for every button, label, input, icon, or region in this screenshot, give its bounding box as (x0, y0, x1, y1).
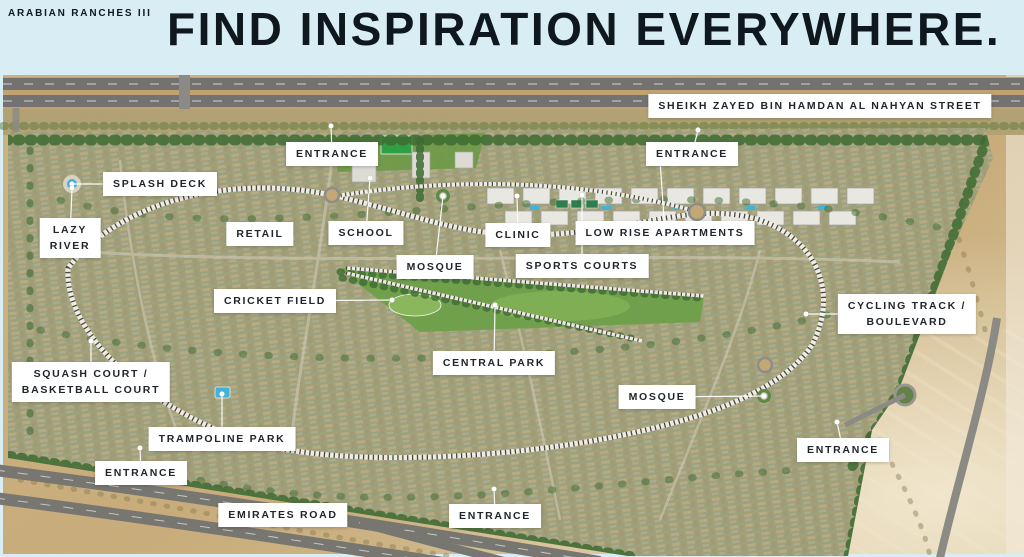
map-label-text: ENTRANCE (459, 508, 531, 524)
leader-dot (219, 391, 224, 396)
map-label-text: EMIRATES ROAD (228, 507, 337, 523)
leader-dot (491, 486, 496, 491)
map-label-text: MOSQUE (629, 389, 686, 405)
map-label-text: BASKETBALL COURT (22, 382, 160, 398)
label-sheikh-zayed-street: SHEIKH ZAYED BIN HAMDAN AL NAHYAN STREET (648, 94, 991, 118)
label-splash-deck: SPLASH DECK (103, 172, 217, 196)
leader-dot (492, 302, 497, 307)
label-mosque-north: MOSQUE (397, 255, 474, 279)
label-lazy-river: LAZYRIVER (40, 218, 101, 258)
leader-dot (695, 127, 700, 132)
map-label-text: LAZY (50, 222, 91, 238)
label-trampoline-park: TRAMPOLINE PARK (149, 427, 296, 451)
map-label-text: CRICKET FIELD (224, 293, 326, 309)
leader-dot (579, 192, 584, 197)
leader-dot (328, 123, 333, 128)
map-label-text: ENTRANCE (296, 146, 368, 162)
leader-dot (761, 393, 766, 398)
leader-dot (834, 419, 839, 424)
map-label-text: CYCLING TRACK / (848, 298, 966, 314)
map-label-text: RETAIL (236, 226, 283, 242)
leader-dot (514, 193, 519, 198)
label-emirates-road: EMIRATES ROAD (218, 503, 347, 527)
map-label-text: CLINIC (495, 227, 540, 243)
leader-dot (367, 175, 372, 180)
label-cycling-track: CYCLING TRACK /BOULEVARD (838, 294, 976, 334)
map-label-text: MOSQUE (407, 259, 464, 275)
label-squash-basketball: SQUASH COURT /BASKETBALL COURT (12, 362, 170, 402)
label-cricket-field: CRICKET FIELD (214, 289, 336, 313)
map-label-text: ENTRANCE (807, 442, 879, 458)
leader-dot (389, 297, 394, 302)
leader-dot (803, 311, 808, 316)
header: ARABIAN RANCHES III FIND INSPIRATION EVE… (0, 0, 1024, 75)
brand-logo: ARABIAN RANCHES III (8, 8, 152, 19)
map-label-text: TRAMPOLINE PARK (159, 431, 286, 447)
label-entrance-east: ENTRANCE (797, 438, 889, 462)
label-entrance-top-left: ENTRANCE (286, 142, 378, 166)
label-central-park: CENTRAL PARK (433, 351, 555, 375)
map-label-text: ENTRANCE (105, 465, 177, 481)
map-label-text: SPLASH DECK (113, 176, 207, 192)
map-label-text: SPORTS COURTS (526, 258, 639, 274)
map-label-text: BOULEVARD (848, 314, 966, 330)
label-mosque-south: MOSQUE (619, 385, 696, 409)
map-label-text: RIVER (50, 238, 91, 254)
label-entrance-top-right: ENTRANCE (646, 142, 738, 166)
label-sports-courts: SPORTS COURTS (516, 254, 649, 278)
map-label-text: LOW RISE APARTMENTS (586, 225, 745, 241)
page-title: FIND INSPIRATION EVERYWHERE. (167, 0, 1001, 60)
map-label-text: SCHOOL (338, 225, 393, 241)
map-label-text: ENTRANCE (656, 146, 728, 162)
label-entrance-south: ENTRANCE (449, 504, 541, 528)
label-low-rise-apartments: LOW RISE APARTMENTS (576, 221, 755, 245)
leader-dot (137, 445, 142, 450)
label-entrance-west: ENTRANCE (95, 461, 187, 485)
leader-dot (88, 338, 93, 343)
sports-courts-cluster (556, 200, 598, 208)
leader-dot (69, 185, 74, 190)
map-label-text: SHEIKH ZAYED BIN HAMDAN AL NAHYAN STREET (658, 98, 981, 114)
leader-dot (440, 193, 445, 198)
label-retail: RETAIL (226, 222, 293, 246)
map-label-text: SQUASH COURT / (22, 366, 160, 382)
map-label-text: CENTRAL PARK (443, 355, 545, 371)
label-clinic: CLINIC (485, 223, 550, 247)
label-school: SCHOOL (328, 221, 403, 245)
